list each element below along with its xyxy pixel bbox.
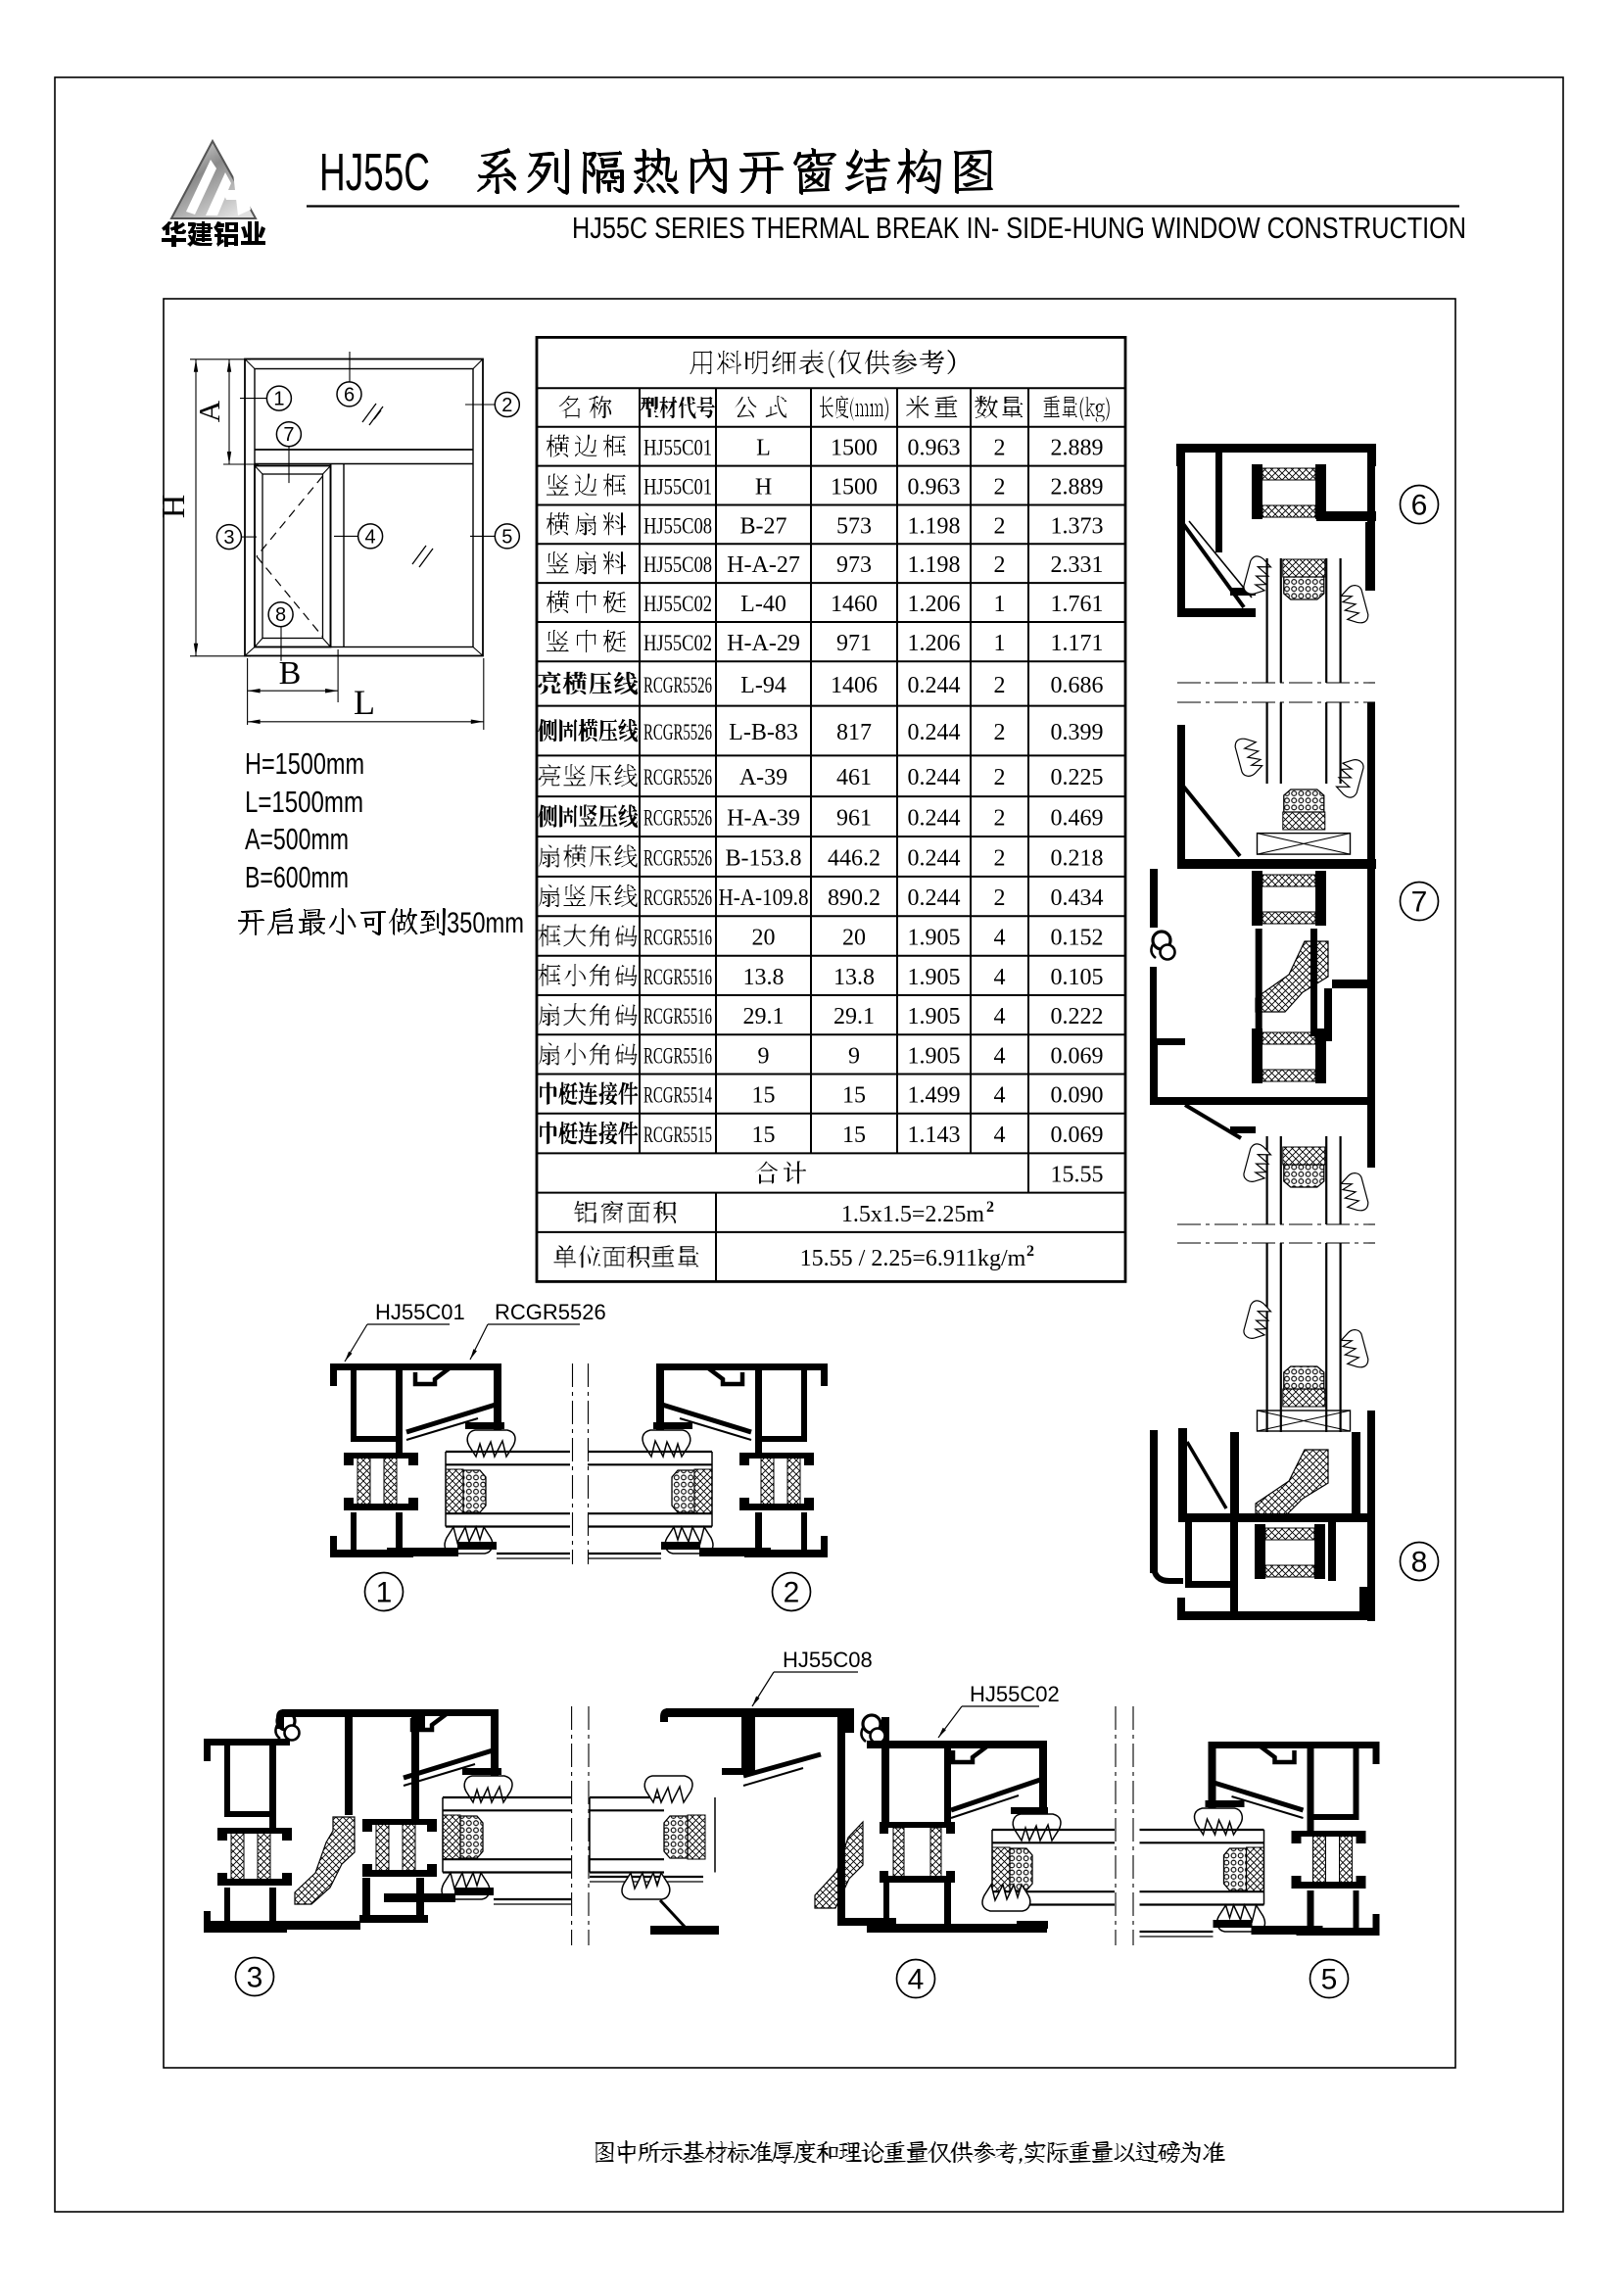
svg-text:961: 961: [836, 806, 872, 832]
svg-text:7: 7: [1411, 886, 1428, 919]
svg-text:1.373: 1.373: [1051, 513, 1104, 539]
svg-text:HJ55C SERIES THERMAL BREAK IN-: HJ55C SERIES THERMAL BREAK IN- SIDE-HUNG…: [572, 212, 1466, 245]
svg-text:RCGR5515: RCGR5515: [643, 1123, 712, 1147]
svg-text:1.206: 1.206: [908, 592, 961, 617]
svg-text:573: 573: [836, 513, 872, 539]
svg-text:5: 5: [1321, 1964, 1338, 1996]
svg-text:H: H: [156, 495, 192, 519]
svg-text:0.244: 0.244: [908, 673, 961, 698]
svg-text:1406: 1406: [831, 673, 878, 698]
svg-text:1.905: 1.905: [908, 926, 961, 951]
svg-text:A-39: A-39: [739, 765, 787, 790]
svg-text:4: 4: [994, 1123, 1006, 1148]
svg-text:1.5x1.5=2.25m: 1.5x1.5=2.25m: [841, 1202, 985, 1227]
svg-text:2: 2: [994, 673, 1006, 698]
svg-text:20: 20: [842, 926, 866, 951]
svg-text:0.069: 0.069: [1051, 1043, 1104, 1069]
svg-text:1: 1: [273, 389, 284, 410]
svg-text:2: 2: [994, 513, 1006, 539]
svg-text:B: B: [279, 655, 302, 692]
svg-text:446.2: 446.2: [828, 846, 881, 872]
svg-text:817: 817: [836, 720, 872, 745]
svg-text:2: 2: [994, 720, 1006, 745]
svg-text:HJ55C08: HJ55C08: [643, 552, 712, 577]
svg-text:0.963: 0.963: [908, 475, 961, 501]
svg-text:RCGR5516: RCGR5516: [643, 1043, 712, 1068]
svg-text:HJ55C: HJ55C: [319, 143, 430, 202]
svg-text:1460: 1460: [831, 592, 878, 617]
svg-text:2: 2: [784, 1577, 800, 1609]
svg-text:HJ55C01: HJ55C01: [643, 475, 712, 500]
svg-text:0.244: 0.244: [908, 720, 961, 745]
svg-text:RCGR5526: RCGR5526: [643, 806, 712, 831]
svg-text:L-B-83: L-B-83: [729, 720, 798, 745]
svg-text:6: 6: [1411, 490, 1428, 522]
svg-text:0.069: 0.069: [1051, 1123, 1104, 1148]
svg-text:B=600mm: B=600mm: [245, 860, 349, 894]
svg-text:4: 4: [994, 1043, 1006, 1069]
svg-text:1500: 1500: [831, 475, 878, 501]
svg-text:13.8: 13.8: [743, 965, 785, 990]
svg-text:15.55: 15.55: [1051, 1163, 1104, 1188]
svg-text:971: 971: [836, 631, 872, 656]
svg-text:0.399: 0.399: [1051, 720, 1104, 745]
svg-text:RCGR5516: RCGR5516: [643, 926, 712, 950]
svg-text:RCGR5526: RCGR5526: [495, 1300, 606, 1324]
svg-text:1.198: 1.198: [908, 513, 961, 539]
svg-text:1.171: 1.171: [1051, 631, 1104, 656]
svg-text:4: 4: [908, 1964, 925, 1996]
svg-text:RCGR5526: RCGR5526: [643, 885, 712, 910]
svg-text:1.905: 1.905: [908, 965, 961, 990]
svg-text:RCGR5514: RCGR5514: [643, 1083, 712, 1108]
svg-text:L: L: [354, 683, 375, 722]
svg-text:1: 1: [994, 592, 1006, 617]
svg-text:350mm: 350mm: [447, 907, 524, 939]
svg-text:29.1: 29.1: [833, 1004, 875, 1029]
svg-text:1.905: 1.905: [908, 1004, 961, 1029]
svg-text:RCGR5516: RCGR5516: [643, 965, 712, 989]
svg-text:15: 15: [842, 1083, 866, 1109]
svg-text:20: 20: [752, 926, 776, 951]
svg-text:0.105: 0.105: [1051, 965, 1104, 990]
svg-text:0.963: 0.963: [908, 436, 961, 461]
svg-text:2.889: 2.889: [1051, 436, 1104, 461]
svg-text:HJ55C08: HJ55C08: [783, 1648, 873, 1672]
svg-text:0.152: 0.152: [1051, 926, 1104, 951]
svg-text:RCGR5516: RCGR5516: [643, 1004, 712, 1028]
svg-text:2: 2: [994, 475, 1006, 501]
svg-text:1.761: 1.761: [1051, 592, 1104, 617]
svg-text:8: 8: [275, 604, 286, 626]
svg-text:2.331: 2.331: [1051, 552, 1104, 578]
svg-text:L-94: L-94: [740, 673, 786, 698]
svg-text:RCGR5526: RCGR5526: [643, 846, 712, 871]
svg-text:0.090: 0.090: [1051, 1083, 1104, 1109]
svg-text:0.434: 0.434: [1051, 885, 1104, 911]
svg-text:1.143: 1.143: [908, 1123, 961, 1148]
svg-text:RCGR5526: RCGR5526: [643, 720, 712, 744]
svg-text:H=1500mm: H=1500mm: [245, 746, 364, 781]
svg-text:15.55 / 2.25=6.911kg/m: 15.55 / 2.25=6.911kg/m: [800, 1246, 1026, 1271]
svg-text:L=1500mm: L=1500mm: [245, 785, 363, 819]
svg-text:1.206: 1.206: [908, 631, 961, 656]
svg-text:4: 4: [994, 1083, 1006, 1109]
svg-text:15: 15: [842, 1123, 866, 1148]
svg-text:4: 4: [994, 965, 1006, 990]
svg-text:HJ55C02: HJ55C02: [643, 592, 712, 616]
svg-text:0.222: 0.222: [1051, 1004, 1104, 1029]
svg-text:2: 2: [994, 806, 1006, 832]
svg-text:HJ55C02: HJ55C02: [970, 1682, 1060, 1706]
svg-text:HJ55C01: HJ55C01: [643, 436, 712, 460]
svg-text:1.499: 1.499: [908, 1083, 961, 1109]
svg-text:29.1: 29.1: [743, 1004, 785, 1029]
svg-text:8: 8: [1411, 1547, 1428, 1579]
svg-text:4: 4: [365, 526, 376, 548]
svg-text:0.225: 0.225: [1051, 765, 1104, 790]
svg-text:L-40: L-40: [740, 592, 786, 617]
svg-text:HJ55C08: HJ55C08: [643, 513, 712, 538]
svg-text:H: H: [755, 475, 772, 501]
svg-text:9: 9: [758, 1043, 770, 1069]
svg-text:2: 2: [986, 1199, 994, 1216]
svg-text:B-27: B-27: [740, 513, 787, 539]
svg-text:890.2: 890.2: [828, 885, 881, 911]
svg-text:0.218: 0.218: [1051, 846, 1104, 872]
svg-text:973: 973: [836, 552, 872, 578]
svg-text:15: 15: [752, 1123, 776, 1148]
svg-text:4: 4: [994, 926, 1006, 951]
svg-text:7: 7: [283, 424, 294, 446]
svg-text:H-A-29: H-A-29: [727, 631, 800, 656]
svg-text:RCGR5526: RCGR5526: [643, 765, 712, 789]
svg-text:L: L: [756, 436, 771, 461]
svg-text:1: 1: [994, 631, 1006, 656]
svg-text:1.905: 1.905: [908, 1043, 961, 1069]
svg-text:A=500mm: A=500mm: [245, 822, 349, 856]
svg-text:0.244: 0.244: [908, 885, 961, 911]
svg-text:HJ55C01: HJ55C01: [375, 1300, 465, 1324]
svg-text:9: 9: [848, 1043, 860, 1069]
svg-text:H-A-27: H-A-27: [727, 552, 800, 578]
svg-text:0.244: 0.244: [908, 806, 961, 832]
svg-text:15: 15: [752, 1083, 776, 1109]
svg-text:B-153.8: B-153.8: [726, 846, 802, 872]
svg-text:461: 461: [836, 765, 872, 790]
svg-text:2: 2: [994, 436, 1006, 461]
svg-text:0.244: 0.244: [908, 846, 961, 872]
svg-text:1500: 1500: [831, 436, 878, 461]
svg-text:A: A: [192, 400, 226, 422]
svg-text:H-A-39: H-A-39: [727, 806, 800, 832]
svg-text:6: 6: [344, 384, 355, 406]
svg-text:2: 2: [994, 885, 1006, 911]
svg-text:13.8: 13.8: [833, 965, 875, 990]
svg-text:1: 1: [376, 1577, 393, 1609]
svg-text:2: 2: [1026, 1243, 1034, 1260]
svg-text:0.244: 0.244: [908, 765, 961, 790]
svg-text:2: 2: [994, 846, 1006, 872]
svg-text:3: 3: [247, 1962, 263, 1994]
svg-text:0.469: 0.469: [1051, 806, 1104, 832]
svg-text:2: 2: [501, 395, 512, 416]
svg-text:4: 4: [994, 1004, 1006, 1029]
svg-text:2: 2: [994, 552, 1006, 578]
svg-text:5: 5: [501, 526, 512, 548]
svg-text:HJ55C02: HJ55C02: [643, 631, 712, 655]
svg-text:H-A-109.8: H-A-109.8: [719, 885, 809, 911]
svg-text:3: 3: [223, 527, 234, 549]
svg-text:1.198: 1.198: [908, 552, 961, 578]
svg-text:0.686: 0.686: [1051, 673, 1104, 698]
svg-text:2: 2: [994, 765, 1006, 790]
svg-text:RCGR5526: RCGR5526: [643, 673, 712, 697]
svg-text:2.889: 2.889: [1051, 475, 1104, 501]
